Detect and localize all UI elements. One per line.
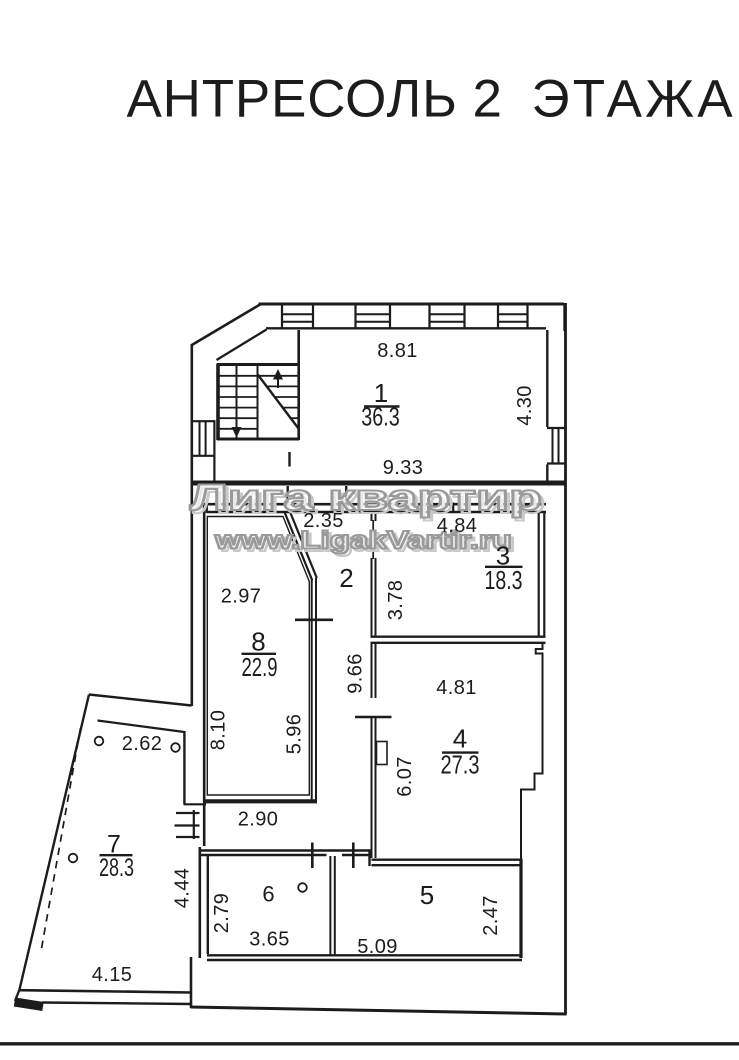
svg-text:ЭТАЖА: ЭТАЖА [532, 70, 736, 129]
svg-text:4.15: 4.15 [92, 964, 133, 986]
svg-text:18.3: 18.3 [485, 565, 523, 595]
svg-text:2.79: 2.79 [211, 893, 233, 934]
svg-text:Лига квартир: Лига квартир [190, 477, 542, 518]
svg-text:9.66: 9.66 [345, 653, 367, 694]
svg-text:3.78: 3.78 [385, 580, 407, 621]
svg-text:2.62: 2.62 [122, 733, 163, 755]
svg-text:4.81: 4.81 [436, 677, 477, 699]
svg-text:5: 5 [420, 880, 434, 910]
svg-text:2: 2 [339, 563, 353, 593]
svg-text:2.47: 2.47 [480, 895, 502, 936]
svg-text:22.9: 22.9 [242, 652, 278, 682]
svg-text:9.33: 9.33 [383, 457, 424, 479]
svg-text:2.90: 2.90 [238, 809, 279, 831]
svg-text:28.3: 28.3 [99, 854, 134, 882]
svg-text:8.10: 8.10 [208, 710, 230, 751]
svg-text:36.3: 36.3 [361, 402, 400, 432]
svg-text:2: 2 [473, 70, 502, 129]
svg-text:27.3: 27.3 [441, 750, 480, 780]
svg-text:6.07: 6.07 [394, 756, 416, 797]
svg-text:3.65: 3.65 [249, 929, 290, 951]
svg-text:АНТРЕСОЛЬ: АНТРЕСОЛЬ [127, 70, 458, 129]
svg-text:4.84: 4.84 [437, 515, 478, 537]
svg-text:4.30: 4.30 [514, 385, 536, 426]
svg-text:2.35: 2.35 [303, 510, 344, 532]
svg-text:5.09: 5.09 [357, 936, 398, 958]
svg-text:5.96: 5.96 [284, 714, 306, 755]
svg-text:2.97: 2.97 [221, 586, 262, 608]
svg-text:8.81: 8.81 [377, 340, 418, 362]
svg-text:4.44: 4.44 [172, 868, 194, 909]
svg-text:6: 6 [262, 882, 274, 907]
